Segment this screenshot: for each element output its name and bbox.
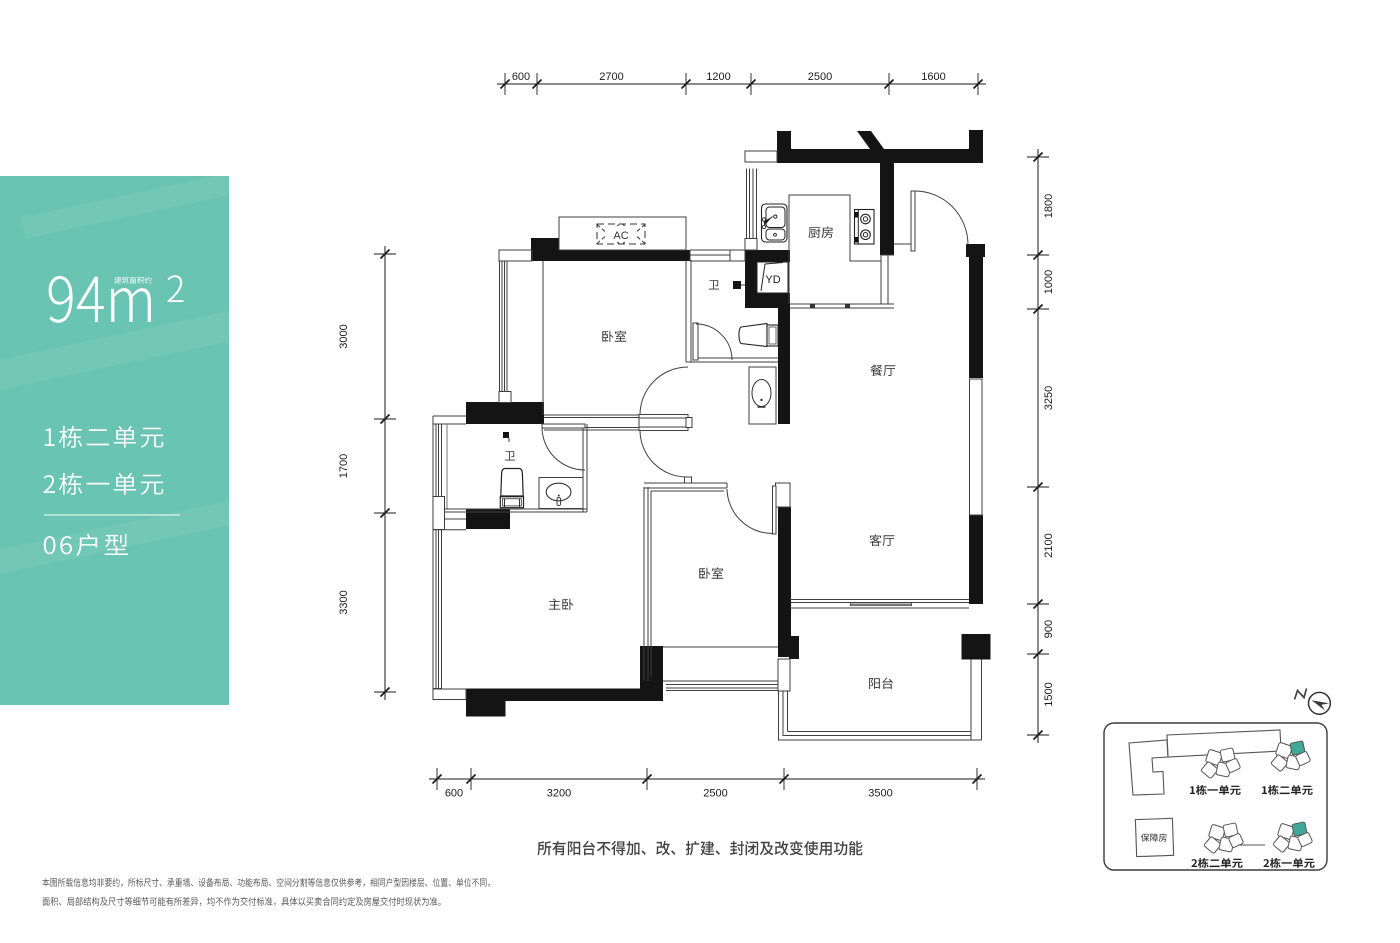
- svg-text:3300: 3300: [338, 590, 350, 614]
- svg-text:3200: 3200: [547, 788, 571, 800]
- svg-text:2700: 2700: [599, 71, 623, 83]
- svg-text:1600: 1600: [921, 71, 945, 83]
- svg-text:3500: 3500: [868, 788, 892, 800]
- svg-text:1000: 1000: [1043, 270, 1055, 294]
- svg-text:AC: AC: [613, 230, 628, 242]
- svg-text:1700: 1700: [338, 454, 350, 478]
- svg-text:2500: 2500: [703, 788, 727, 800]
- svg-text:600: 600: [512, 71, 530, 83]
- svg-text:YD: YD: [765, 274, 780, 286]
- svg-text:900: 900: [1043, 620, 1055, 638]
- svg-text:600: 600: [445, 788, 463, 800]
- svg-text:1200: 1200: [706, 71, 730, 83]
- svg-text:2100: 2100: [1043, 533, 1055, 557]
- svg-text:3000: 3000: [338, 324, 350, 348]
- svg-text:2500: 2500: [808, 71, 832, 83]
- svg-text:1800: 1800: [1043, 194, 1055, 218]
- svg-text:1500: 1500: [1043, 682, 1055, 706]
- svg-text:3250: 3250: [1043, 386, 1055, 410]
